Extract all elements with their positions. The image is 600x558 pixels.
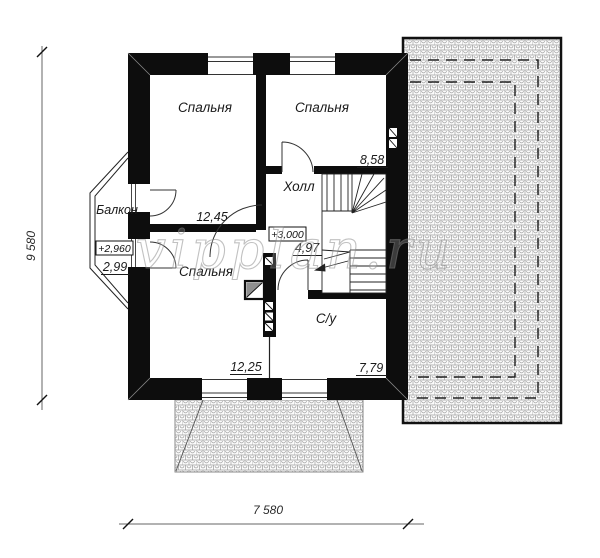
room-area-bathroom: 7,79 [359,361,383,375]
watermark-text: vipplan.ru [136,218,455,281]
window-bottom-right [282,378,327,400]
room-label-bathroom: С/у [316,311,338,326]
door-arc-balcony-bedroom1 [150,190,176,216]
room-label-hall: Холл [282,179,315,194]
dimension-line-height: 9 580 [24,46,47,410]
window-top-right [290,53,335,75]
dim-width-label: 7 580 [253,503,283,517]
room-area-bedroom-2: 8,58 [360,153,384,167]
window-bottom-left [202,378,247,400]
room-area-bedroom-3: 12,25 [230,360,261,374]
door-arc-bedroom2 [282,142,313,172]
room-label-bedroom-1: Спальня [178,100,232,115]
room-label-bedroom-2: Спальня [295,100,349,115]
dim-height-label: 9 580 [24,231,38,261]
room-label-balcony: Балкон [96,203,138,217]
elevation-mark-balcony: +2,960 [96,241,133,255]
balcony-outline [90,152,128,309]
floor-plan-svg: Спальня 12,45 Спальня 8,58 Холл 4,97 Спа… [0,0,600,558]
window-top-left [208,53,253,75]
svg-text:+2,960: +2,960 [98,243,131,255]
dimension-line-width: 7 580 [119,503,424,529]
room-area-balcony: 2,99 [102,260,127,274]
chimney-block [245,281,264,299]
floor-plan-page: Спальня 12,45 Спальня 8,58 Холл 4,97 Спа… [0,0,600,558]
porch-roof-hatch [175,400,363,472]
